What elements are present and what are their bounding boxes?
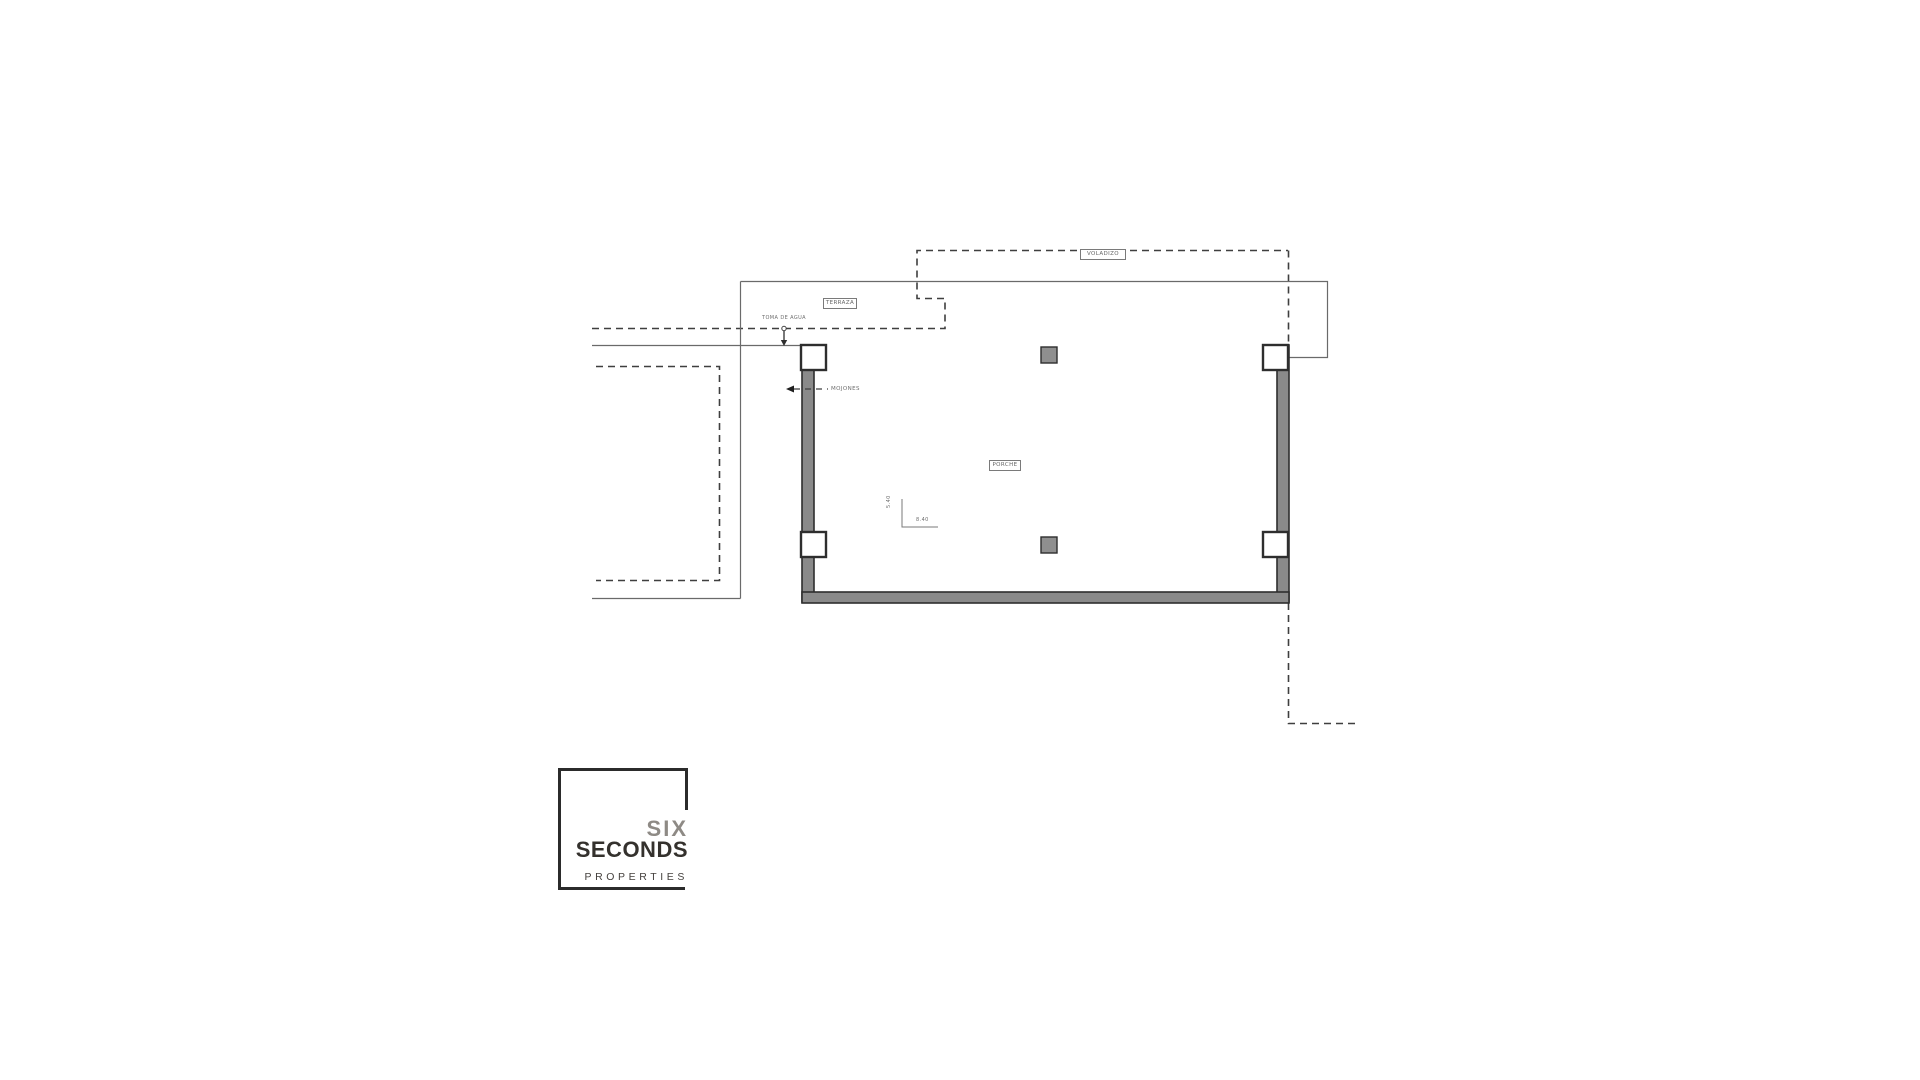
dimension-vertical-value: 5.40 <box>886 495 892 508</box>
bottom-wall <box>802 592 1289 603</box>
overhang-dashed-outline <box>592 251 1288 329</box>
label-terraza: TERRAZA <box>823 298 857 309</box>
label-voladizo: VOLADIZO <box>1080 249 1126 260</box>
dimension-horizontal-value: 8.40 <box>916 517 929 523</box>
label-toma-de-agua: TOMA DE AGUA <box>752 315 816 321</box>
column-top <box>1041 347 1057 363</box>
logo-properties: PROPERTIES <box>548 872 688 883</box>
terrace-outline <box>741 282 1328 358</box>
pillar-bottom-right <box>1263 532 1288 557</box>
logo-border-right-segment <box>685 768 688 810</box>
label-mojones: MOJONES <box>831 386 860 392</box>
column-bottom <box>1041 537 1057 553</box>
pillar-bottom-left <box>801 532 826 557</box>
water-intake-symbol <box>781 326 787 346</box>
logo-seconds: SECONDS <box>548 839 688 860</box>
label-porche: PORCHE <box>989 460 1021 471</box>
logo-text-block: SIX SECONDS PROPERTIES <box>548 819 688 883</box>
boundary-dashed-left-plot <box>596 367 720 581</box>
logo-box: SIX SECONDS PROPERTIES <box>558 768 685 890</box>
pillar-top-right <box>1263 345 1288 370</box>
logo-six: SIX <box>548 819 688 839</box>
right-wall <box>1277 345 1289 602</box>
floor-plan-drawing <box>0 0 1920 1080</box>
pillar-top-left <box>801 345 826 370</box>
left-wall <box>802 345 814 602</box>
boundary-dashed-right-lower <box>1289 603 1361 724</box>
